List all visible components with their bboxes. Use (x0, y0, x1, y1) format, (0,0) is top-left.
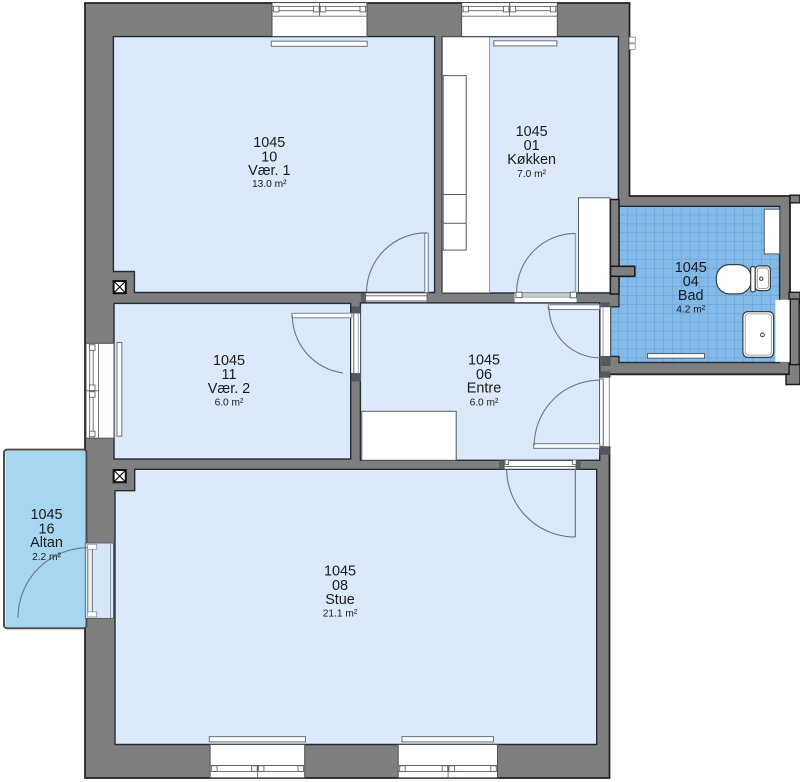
svg-text:Stue: Stue (325, 592, 355, 608)
svg-text:Entre: Entre (467, 381, 501, 397)
svg-text:Vær. 2: Vær. 2 (208, 381, 250, 397)
svg-text:6.0 m²: 6.0 m² (470, 398, 499, 409)
svg-text:Altan: Altan (30, 535, 63, 551)
svg-text:Vær. 1: Vær. 1 (248, 163, 290, 179)
svg-text:6.0 m²: 6.0 m² (215, 398, 244, 409)
svg-text:13.0 m²: 13.0 m² (252, 179, 287, 190)
svg-text:4.2 m²: 4.2 m² (676, 304, 705, 315)
svg-text:21.1 m²: 21.1 m² (323, 608, 358, 619)
svg-text:Køkken: Køkken (507, 152, 556, 168)
svg-text:Bad: Bad (678, 288, 704, 304)
svg-text:2.2 m²: 2.2 m² (32, 552, 61, 563)
svg-text:7.0 m²: 7.0 m² (517, 169, 546, 180)
